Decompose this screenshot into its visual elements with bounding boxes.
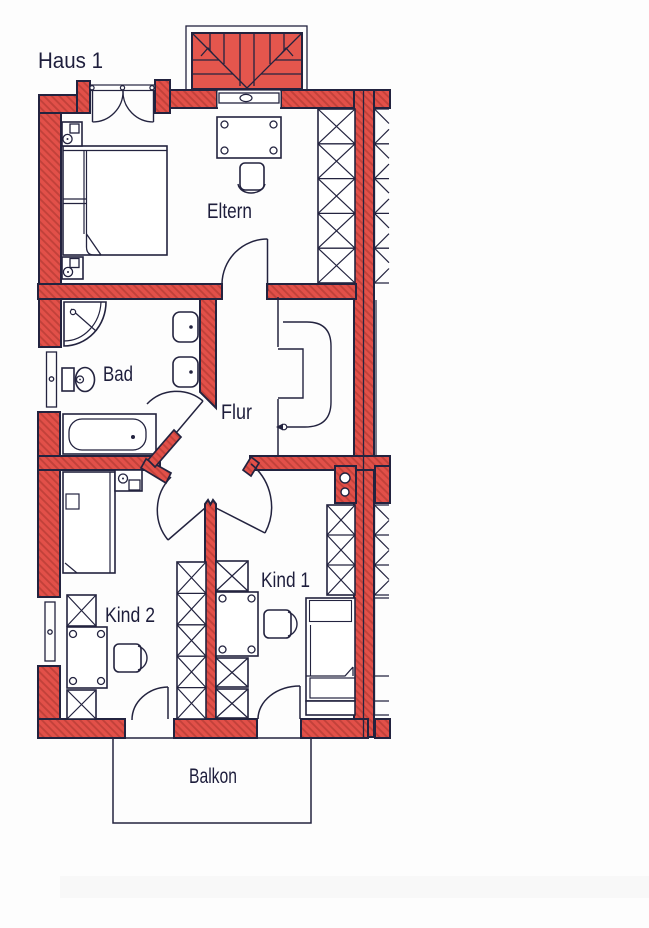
- svg-text:Balkon: Balkon: [189, 765, 237, 788]
- svg-text:Kind 2: Kind 2: [105, 604, 155, 627]
- svg-text:Haus 1: Haus 1: [38, 48, 103, 73]
- svg-text:Bad: Bad: [103, 363, 133, 386]
- svg-text:Flur: Flur: [221, 401, 252, 424]
- svg-text:Kind 1: Kind 1: [261, 569, 310, 592]
- svg-text:Eltern: Eltern: [207, 200, 252, 223]
